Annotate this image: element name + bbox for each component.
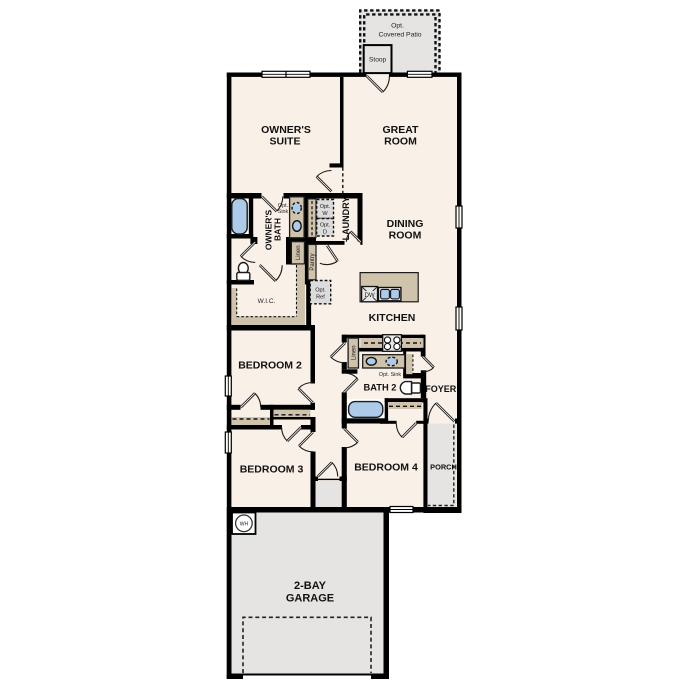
svg-text:FOYER: FOYER: [425, 384, 457, 394]
svg-text:OWNER'S: OWNER'S: [261, 124, 311, 136]
svg-text:GARAGE: GARAGE: [286, 592, 334, 604]
svg-text:Stoop: Stoop: [369, 57, 387, 64]
svg-text:GREAT: GREAT: [383, 124, 420, 136]
svg-text:KITCHEN: KITCHEN: [369, 312, 416, 324]
svg-text:BEDROOM 4: BEDROOM 4: [354, 462, 418, 474]
svg-text:D: D: [323, 230, 327, 236]
svg-text:2-BAY: 2-BAY: [294, 580, 327, 592]
svg-text:DW: DW: [364, 292, 374, 299]
svg-text:BEDROOM 3: BEDROOM 3: [240, 464, 304, 476]
svg-text:WH: WH: [240, 521, 249, 527]
svg-text:LAUNDRY: LAUNDRY: [341, 197, 351, 241]
svg-text:Opt.: Opt.: [391, 23, 404, 30]
svg-text:PORCH: PORCH: [430, 463, 457, 472]
svg-text:Opt.: Opt.: [320, 223, 331, 229]
svg-text:DINING: DINING: [387, 218, 424, 230]
svg-text:Ref: Ref: [316, 295, 325, 301]
svg-text:BATH: BATH: [273, 218, 283, 241]
svg-text:Opt.: Opt.: [315, 288, 326, 294]
svg-text:W: W: [322, 211, 328, 217]
svg-text:Covered Patio: Covered Patio: [378, 31, 421, 38]
svg-text:BATH 2: BATH 2: [364, 383, 397, 393]
svg-text:ROOM: ROOM: [384, 135, 417, 147]
svg-text:Linen: Linen: [296, 245, 302, 260]
svg-text:ROOM: ROOM: [389, 230, 422, 242]
svg-text:Opt. Sink: Opt. Sink: [379, 372, 401, 378]
svg-text:Sink: Sink: [278, 209, 289, 215]
svg-text:Pantry: Pantry: [310, 253, 316, 270]
svg-text:Linen: Linen: [352, 345, 358, 360]
svg-text:Opt.: Opt.: [320, 204, 331, 210]
svg-text:SUITE: SUITE: [270, 135, 301, 147]
svg-text:BEDROOM 2: BEDROOM 2: [238, 360, 302, 372]
svg-text:W.I.C.: W.I.C.: [258, 298, 276, 305]
